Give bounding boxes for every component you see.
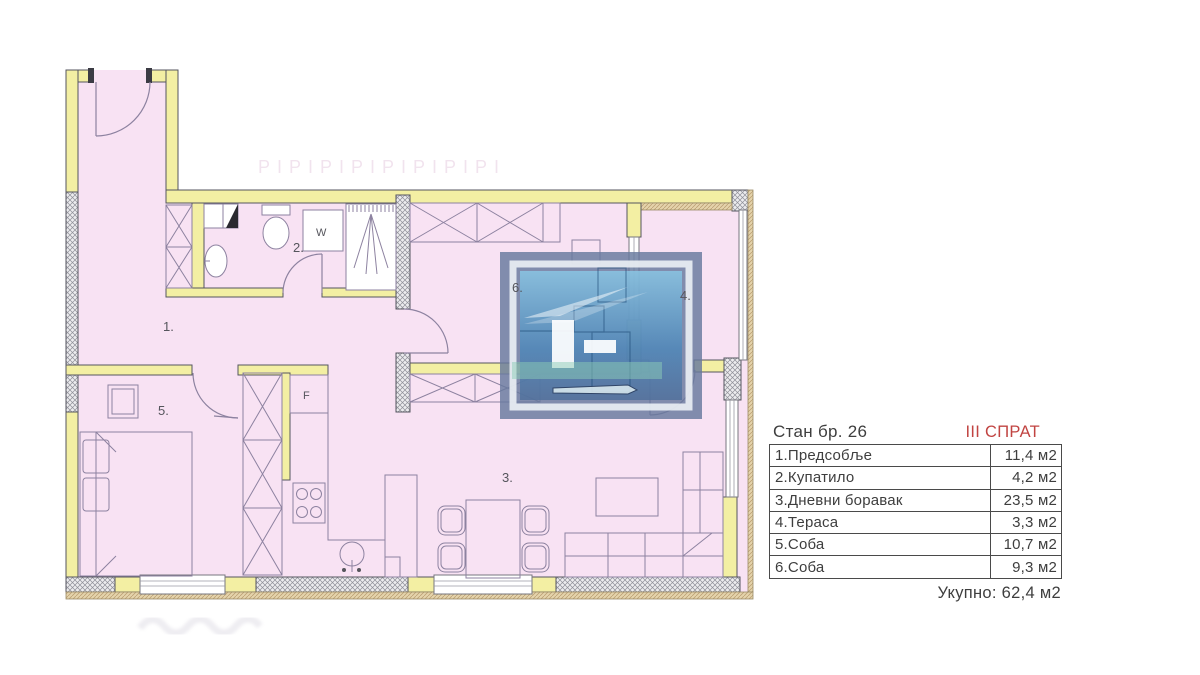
- label-terrace: 4.: [680, 288, 691, 303]
- faint-watermark-text: PIPIPIPIPIPIPIPI: [258, 157, 506, 177]
- developer-logo-watermark: [500, 252, 702, 419]
- room-area: 10,7 м2: [990, 534, 1061, 555]
- area-grid: 1.Предсобље 11,4 м2 2.Купатило 4,2 м2 3.…: [769, 444, 1062, 579]
- total-area: Укупно: 62,4 м2: [769, 584, 1062, 603]
- table-header: Стан бр. 26 III СПРАТ: [769, 421, 1062, 444]
- label-washer: W: [316, 227, 327, 239]
- room-name: 1.Предсобље: [770, 445, 990, 466]
- label-hallway: 1.: [163, 319, 174, 334]
- room-area: 3,3 м2: [990, 512, 1061, 533]
- window-right: [726, 400, 738, 497]
- door-jamb: [146, 68, 152, 83]
- area-table: Стан бр. 26 III СПРАТ 1.Предсобље 11,4 м…: [769, 421, 1062, 603]
- room-area: 11,4 м2: [990, 445, 1061, 466]
- apartment-number: Стан бр. 26: [773, 422, 867, 442]
- label-living: 3.: [502, 470, 513, 485]
- floorplan-page: PIPIPIPIPIPIPIPI 1. 2. 3. 4. 5. 6. W F С…: [0, 0, 1200, 675]
- room-name: 2.Купатило: [770, 467, 990, 488]
- room-area: 9,3 м2: [990, 556, 1061, 577]
- table-row: 2.Купатило 4,2 м2: [770, 466, 1061, 488]
- table-row: 1.Предсобље 11,4 м2: [770, 445, 1061, 466]
- terrace-glazing: [739, 210, 747, 360]
- window-bottom-left: [140, 575, 225, 594]
- table-row: 3.Дневни боравак 23,5 м2: [770, 489, 1061, 511]
- table-row: 5.Соба 10,7 м2: [770, 533, 1061, 555]
- door-jamb: [88, 68, 94, 83]
- label-bathroom: 2.: [293, 240, 304, 255]
- floor-number: III СПРАТ: [965, 423, 1062, 442]
- room-name: 5.Соба: [770, 534, 990, 555]
- room-area: 4,2 м2: [990, 467, 1061, 488]
- label-fridge: F: [303, 390, 310, 402]
- label-bedroom: 5.: [158, 403, 169, 418]
- label-room6: 6.: [512, 280, 523, 295]
- toilet: [262, 205, 290, 249]
- room-name: 3.Дневни боравак: [770, 490, 990, 511]
- room-area: 23,5 м2: [990, 490, 1061, 511]
- table-row: 4.Тераса 3,3 м2: [770, 511, 1061, 533]
- room-name: 6.Соба: [770, 556, 990, 577]
- table-row: 6.Соба 9,3 м2: [770, 555, 1061, 577]
- bathroom-vanity: [204, 204, 238, 228]
- shower: [346, 204, 396, 290]
- logo-glyph: [552, 320, 574, 368]
- faint-watermark-script: [140, 619, 260, 633]
- room-name: 4.Тераса: [770, 512, 990, 533]
